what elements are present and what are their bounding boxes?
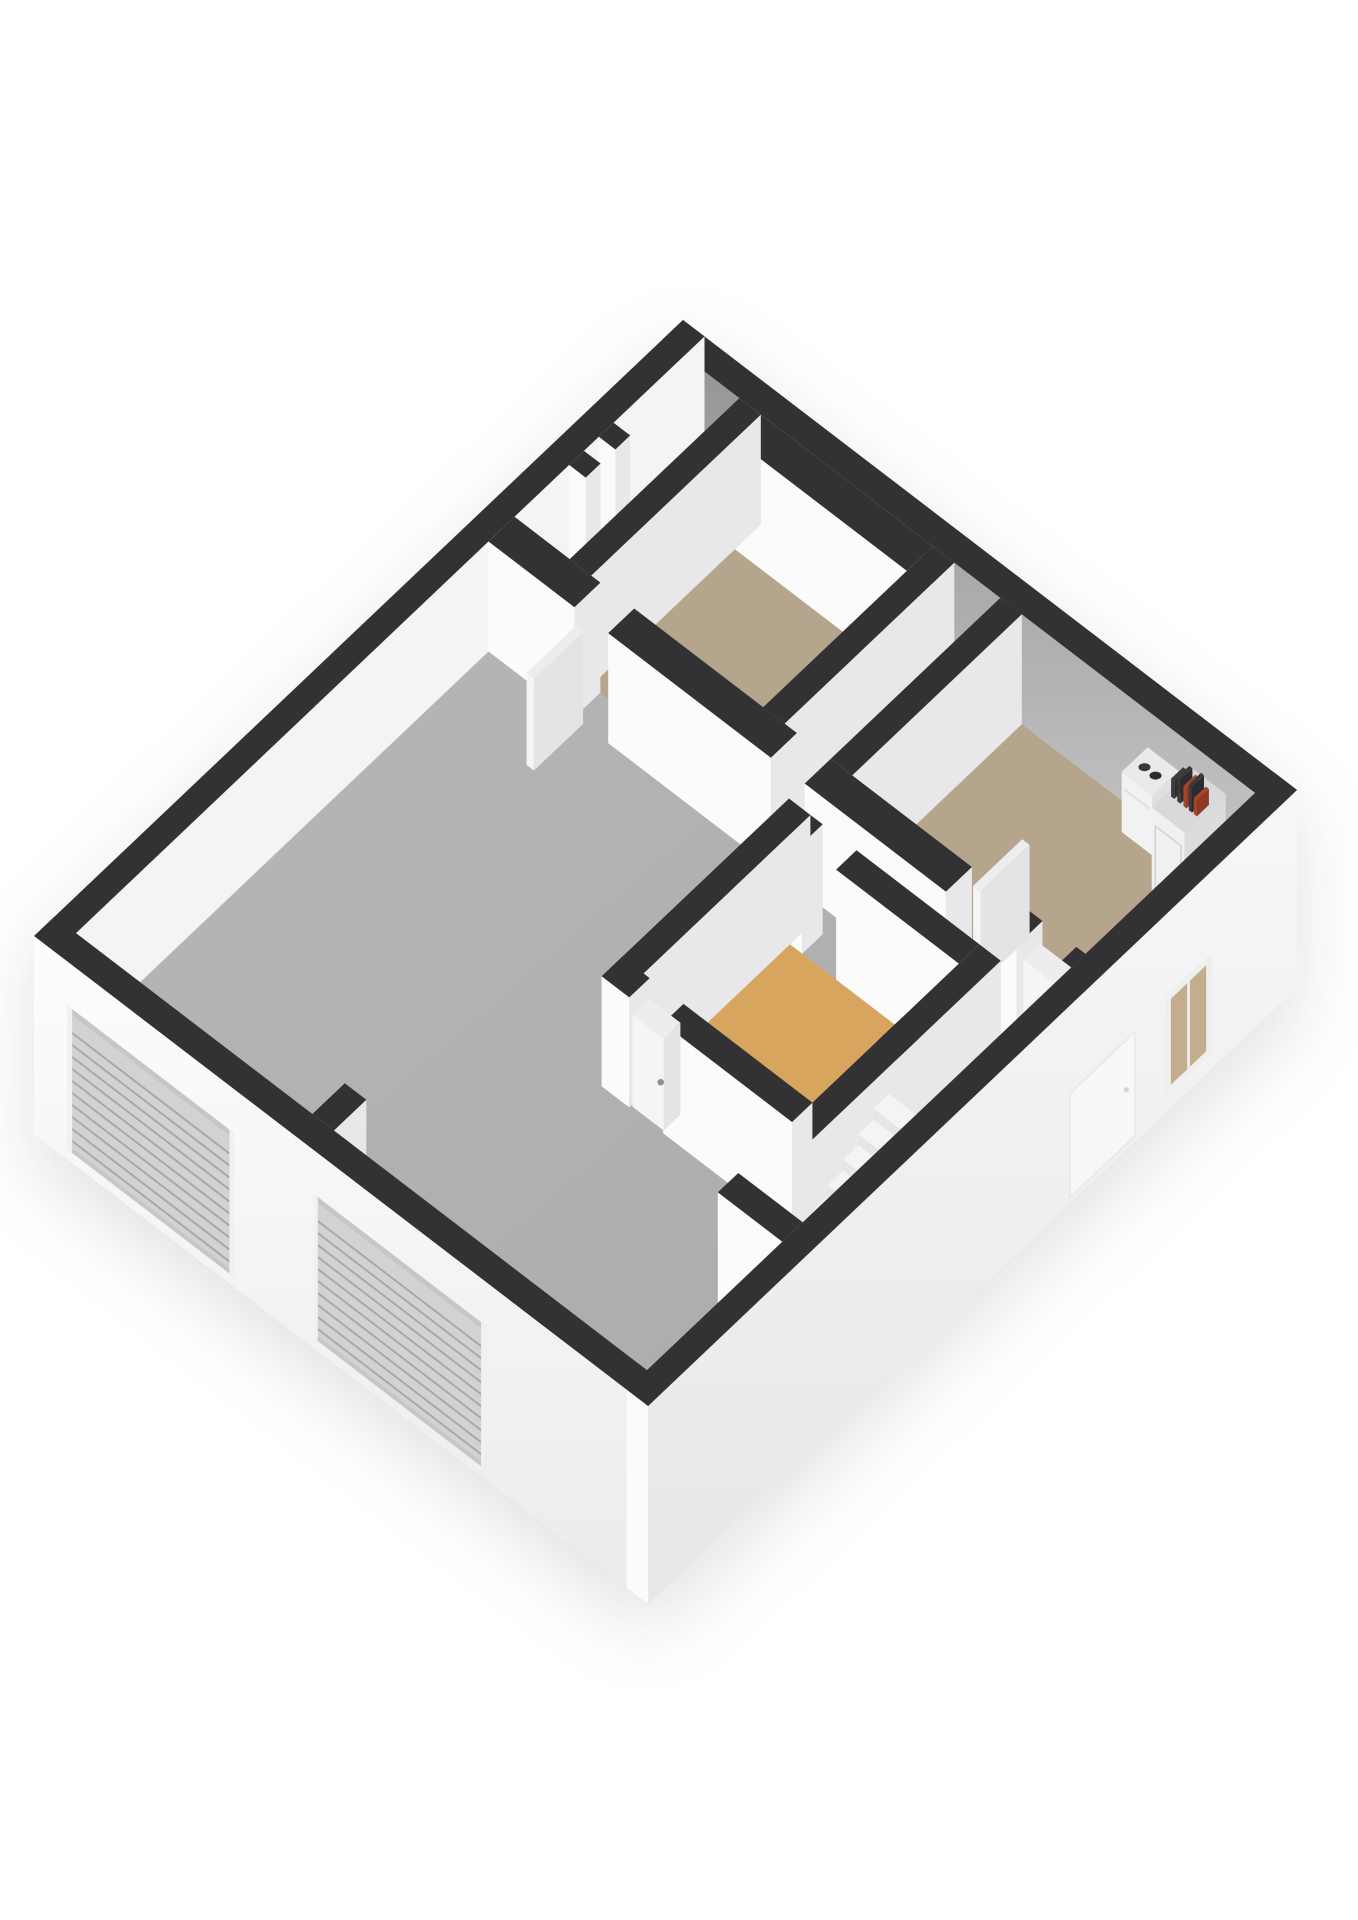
door-top-bedroom-face-s [527, 673, 534, 771]
bedroom-middle-wall-s-seg-2-face-e [792, 1103, 812, 1232]
floorplan-canvas [0, 0, 1358, 1920]
utility-cabinet-pipe-4-face-s [1189, 784, 1192, 812]
building-group [34, 320, 1297, 1604]
garage-door-2-jamb-right [481, 1322, 485, 1469]
garage-door-1-jamb-right [229, 1130, 233, 1277]
floorplan-stage [0, 0, 1358, 1920]
door-middle-bedroom-face-e [664, 1023, 681, 1131]
garage-door-2-jamb-left [314, 1194, 318, 1341]
garage-door-1-jamb-left [68, 1006, 72, 1153]
utility-cabinet-pipe-1-face-s [1171, 779, 1174, 799]
entry-door-se-handle [1124, 1087, 1129, 1092]
bedroom-middle-wall-s-seg-1-face-s [602, 976, 630, 1107]
boiler-unit-flue-port-2 [1150, 772, 1162, 780]
boiler-unit-flue-port-1 [1139, 763, 1151, 771]
utility-cabinet-pipe-2-face-s [1177, 777, 1180, 803]
door-middle-bedroom-handle [658, 1079, 664, 1085]
utility-cabinet-pipe-3-face-s [1183, 786, 1186, 808]
utility-cabinet-pipe-5-face-s [1194, 798, 1197, 816]
window-se-mullion [1187, 981, 1190, 1070]
outer-wall-se-face-s [627, 1390, 649, 1605]
